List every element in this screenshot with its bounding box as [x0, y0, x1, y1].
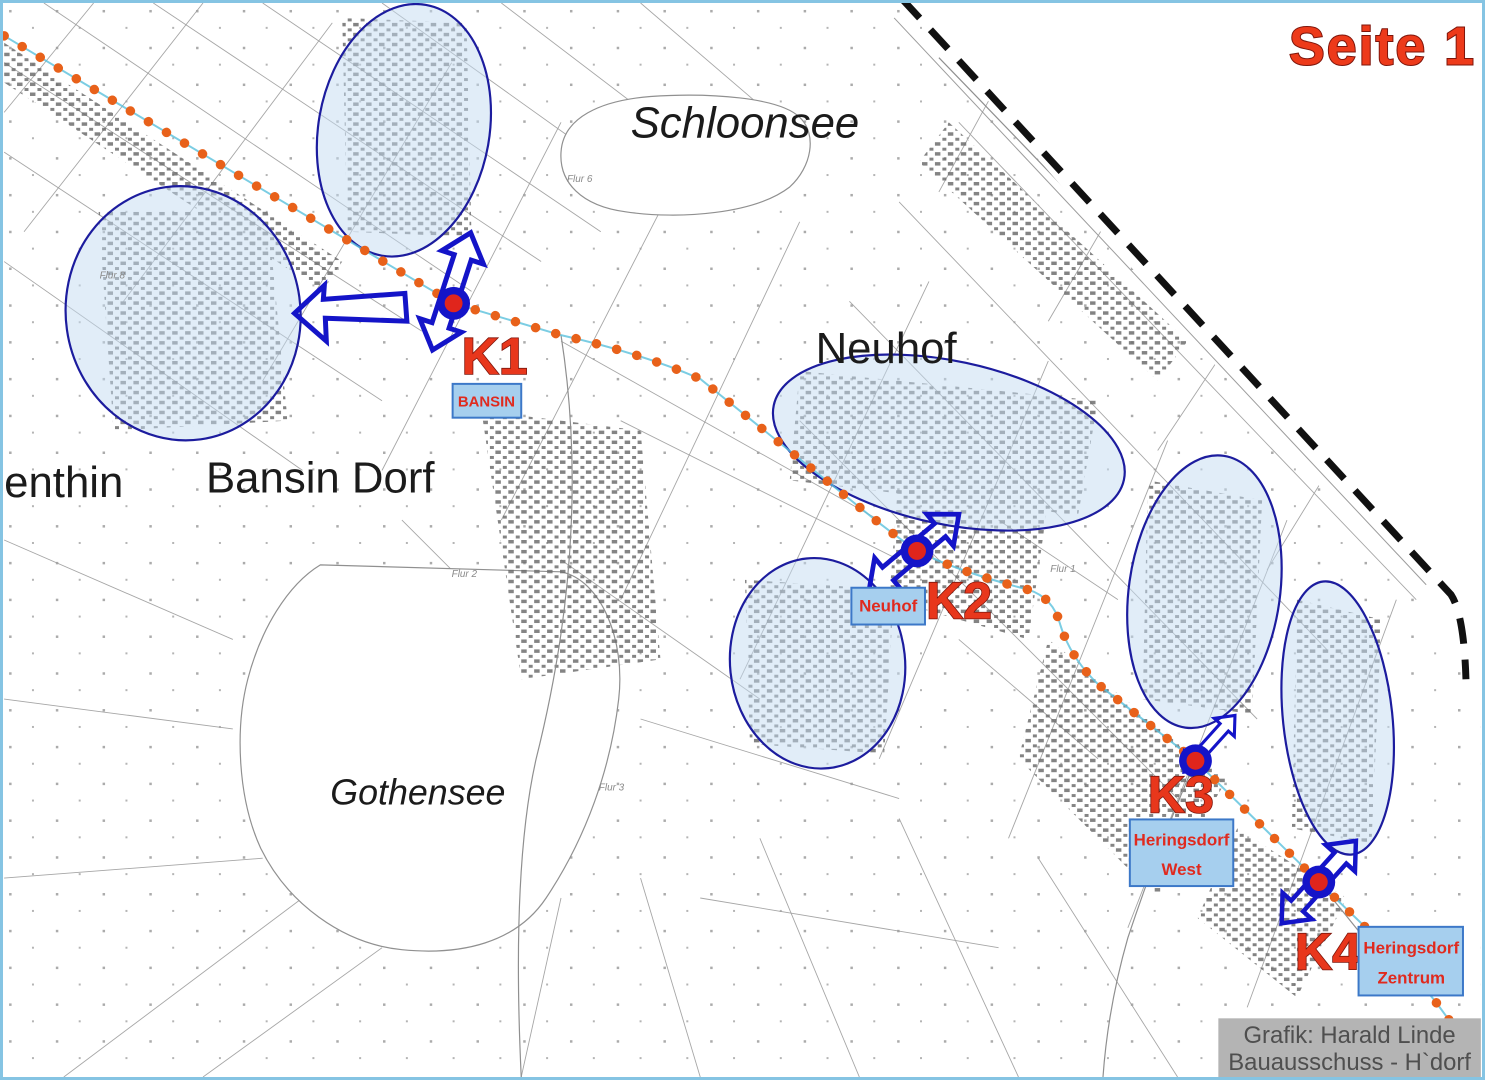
label-box-neuhof-text: Neuhof: [859, 597, 918, 616]
map-canvas: Schloonsee Neuhof Bansin Dorf Gothensee …: [3, 3, 1482, 1077]
small-label: Flur 6: [567, 174, 593, 185]
small-label: Flur 2: [452, 569, 478, 580]
label-neuhof: Neuhof: [816, 324, 958, 373]
label-box-bansin: BANSIN: [453, 384, 522, 418]
label-box-heringsdorf-west: Heringsdorf West: [1130, 819, 1233, 886]
label-box-heringsdorf-west-line2: West: [1162, 860, 1202, 879]
label-k4: K4: [1295, 923, 1361, 981]
label-k3: K3: [1148, 765, 1214, 823]
small-label: Flur 3: [599, 783, 625, 794]
label-bansin-dorf: Bansin Dorf: [206, 453, 435, 502]
label-box-heringsdorf-zentrum-line1: Heringsdorf: [1363, 939, 1459, 958]
small-label: Flur 8: [100, 270, 126, 281]
label-box-heringsdorf-west-line1: Heringsdorf: [1134, 830, 1230, 849]
page-title: Seite 1: [1289, 17, 1476, 77]
credit-line1: Grafik: Harald Linde: [1244, 1022, 1456, 1049]
label-box-bansin-text: BANSIN: [458, 395, 515, 411]
label-box-neuhof: Neuhof: [851, 588, 925, 625]
label-enthin: enthin: [4, 458, 123, 507]
label-k1: K1: [462, 327, 528, 385]
credit-box: Grafik: Harald Linde Bauausschuss - H`do…: [1218, 1018, 1481, 1077]
label-box-heringsdorf-zentrum: Heringsdorf Zentrum: [1359, 927, 1463, 996]
label-k2: K2: [926, 572, 992, 630]
label-schloonsee: Schloonsee: [631, 98, 860, 147]
label-box-heringsdorf-zentrum-line2: Zentrum: [1377, 969, 1445, 988]
credit-line2: Bauausschuss - H`dorf: [1228, 1049, 1471, 1076]
small-label: Flur 1: [1050, 564, 1075, 575]
marker-k2-dot: [901, 535, 934, 568]
marker-k1-dot: [437, 287, 470, 320]
marker-k4-dot: [1302, 866, 1335, 899]
label-gothensee: Gothensee: [330, 773, 505, 813]
map-page: Schloonsee Neuhof Bansin Dorf Gothensee …: [0, 0, 1485, 1080]
